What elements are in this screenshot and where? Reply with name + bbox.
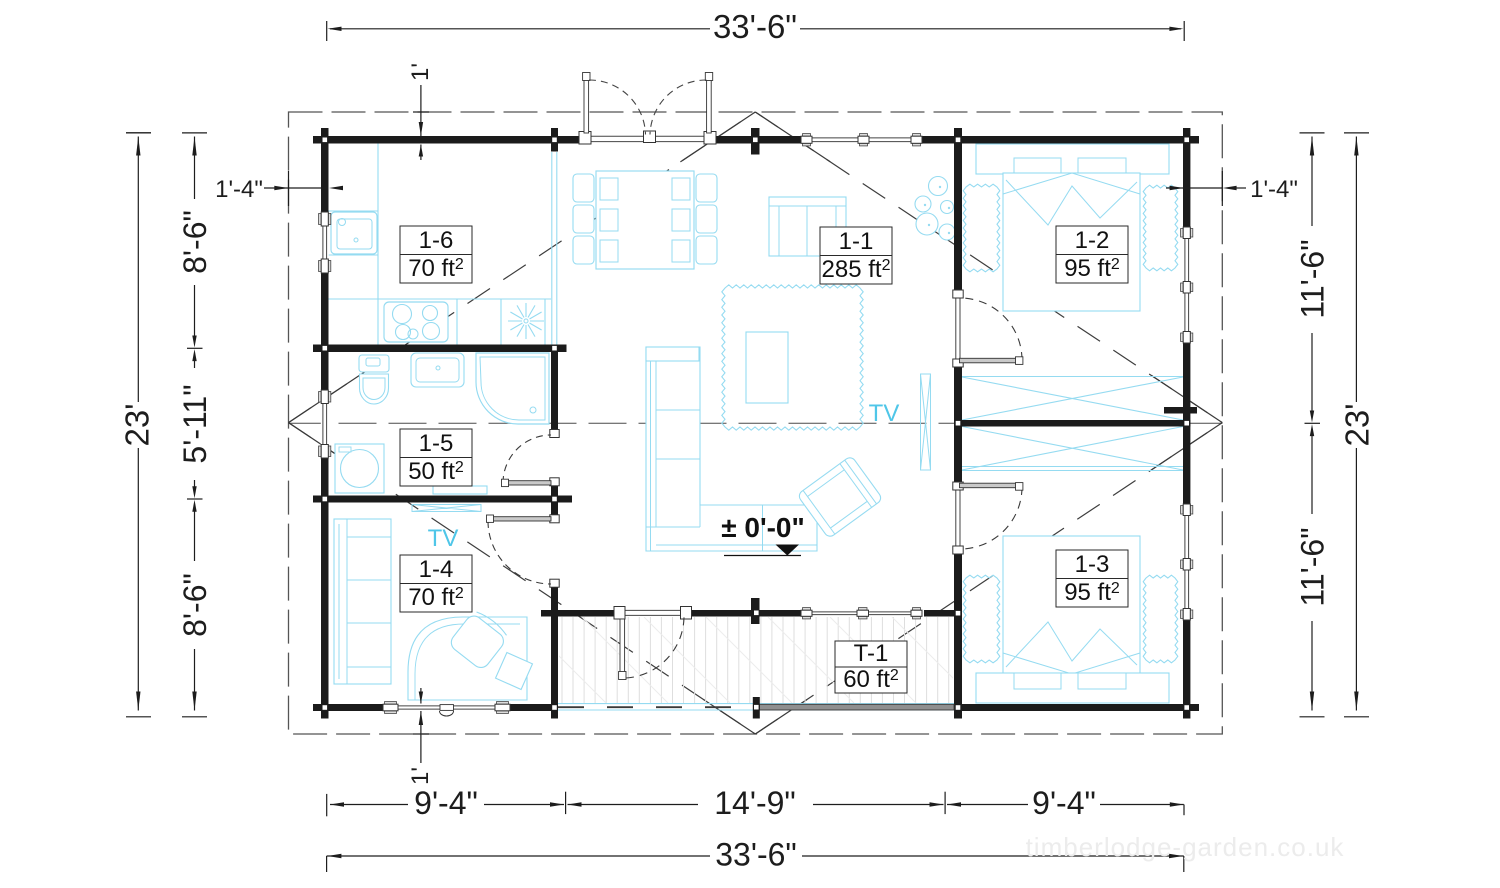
svg-text:9'-4": 9'-4" [1032,785,1096,821]
svg-text:T-1: T-1 [854,640,889,667]
svg-text:14'-9": 14'-9" [714,785,796,821]
svg-text:1': 1' [407,767,434,785]
svg-text:1-5: 1-5 [419,430,454,457]
svg-text:1-1: 1-1 [839,228,874,255]
svg-text:1-4: 1-4 [419,556,454,583]
svg-text:285 ft2: 285 ft2 [822,256,891,283]
svg-text:33'-6": 33'-6" [713,8,797,45]
svg-text:33'-6": 33'-6" [715,837,797,873]
svg-text:23': 23' [1339,403,1376,446]
svg-text:8'-6": 8'-6" [177,573,213,637]
svg-text:1-2: 1-2 [1075,227,1110,254]
svg-text:timberlodge-garden.co.uk: timberlodge-garden.co.uk [1026,832,1345,862]
svg-text:9'-4": 9'-4" [414,785,478,821]
svg-text:TV: TV [869,400,900,427]
svg-text:1'-4": 1'-4" [215,176,263,203]
svg-text:5'-11": 5'-11" [177,384,213,463]
svg-text:1-3: 1-3 [1075,551,1110,578]
svg-text:1': 1' [407,63,434,81]
svg-text:8'-6": 8'-6" [177,210,213,274]
svg-text:± 0'-0": ± 0'-0" [721,512,805,543]
svg-text:TV: TV [428,525,459,552]
svg-text:1-6: 1-6 [419,227,454,254]
svg-text:11'-6": 11'-6" [1295,527,1331,606]
svg-text:11'-6": 11'-6" [1295,239,1331,318]
svg-text:23': 23' [119,403,156,446]
svg-text:1'-4": 1'-4" [1250,176,1298,203]
